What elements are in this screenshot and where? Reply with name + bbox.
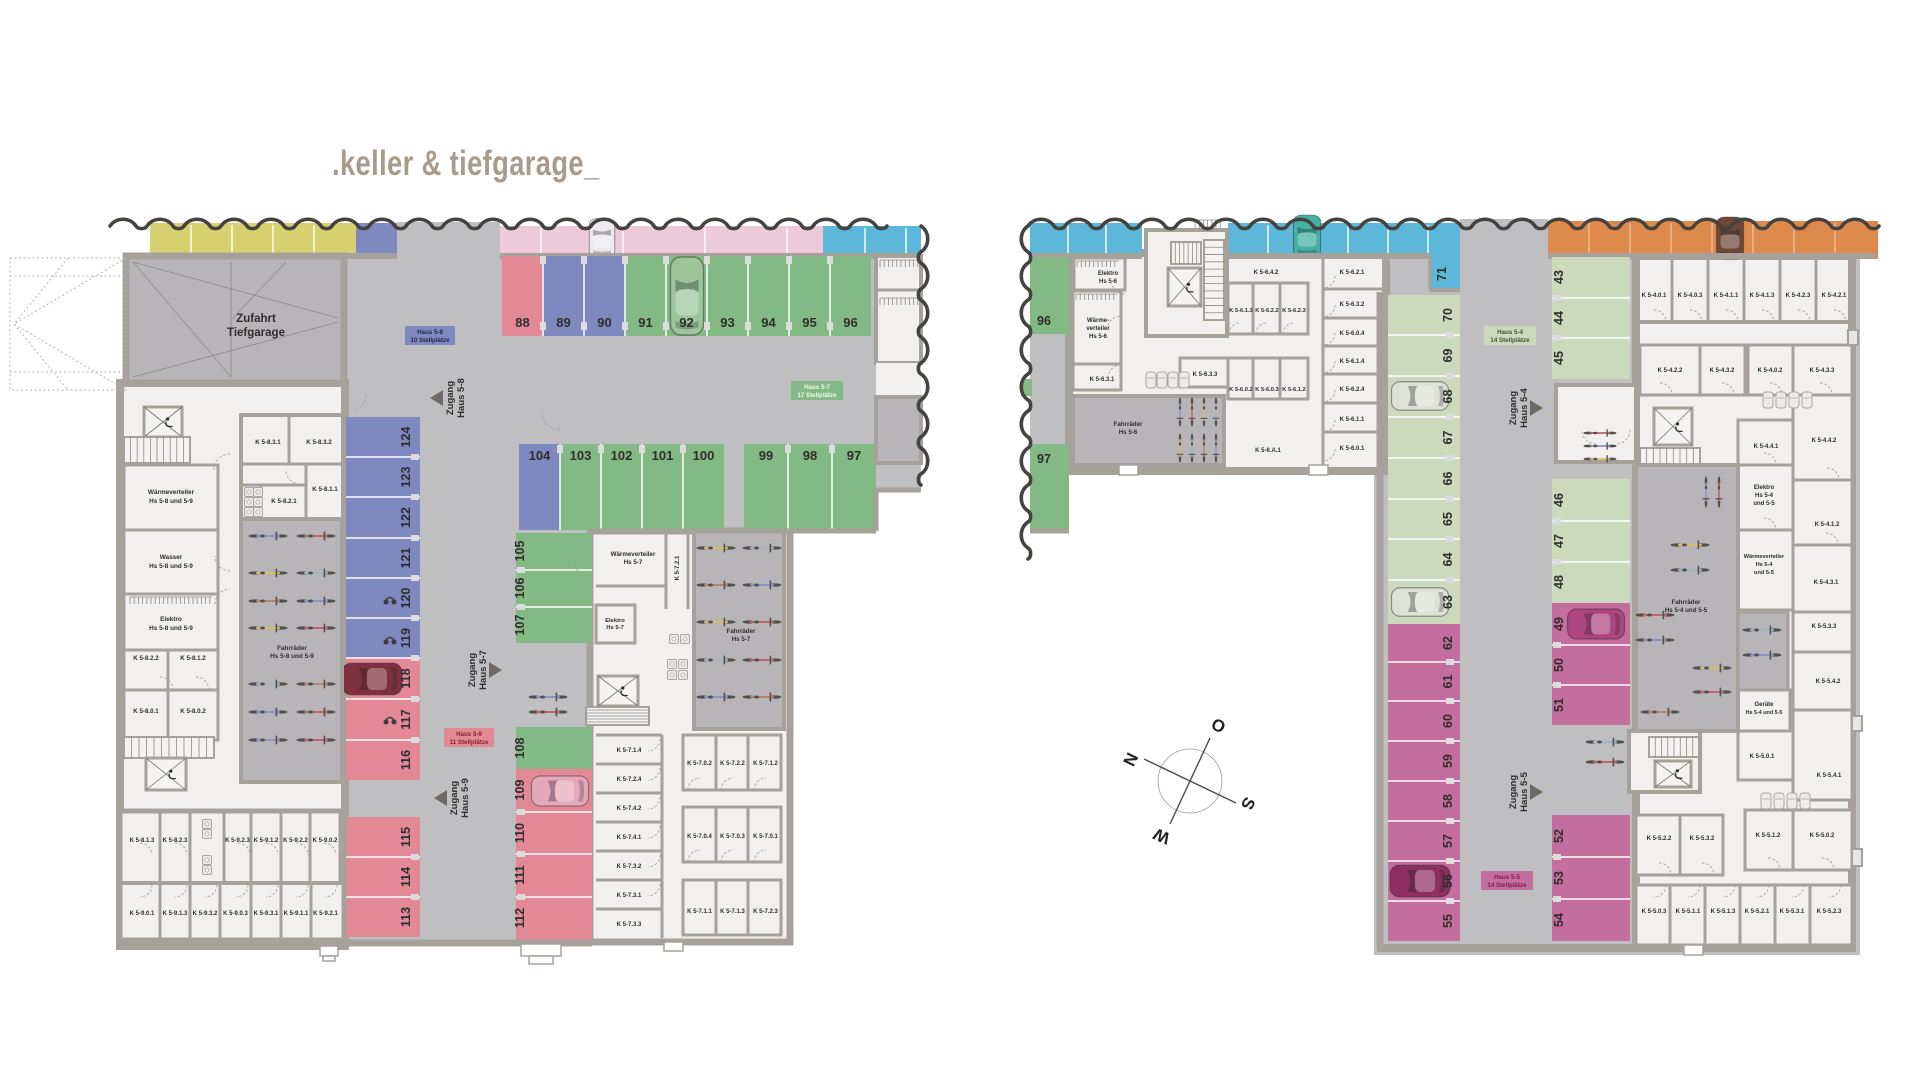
svg-text:96: 96 bbox=[843, 315, 857, 330]
svg-text:K 5-9.2.1: K 5-9.2.1 bbox=[313, 911, 338, 917]
svg-text:115: 115 bbox=[399, 827, 413, 847]
svg-text:10 Stellplätze: 10 Stellplätze bbox=[410, 337, 450, 344]
svg-text:96: 96 bbox=[1037, 314, 1051, 328]
svg-text:K 5-5.3.1: K 5-5.3.1 bbox=[1780, 909, 1805, 915]
svg-text:K 5-9.3.2: K 5-9.3.2 bbox=[193, 911, 218, 917]
svg-text:K 5-5.4.2: K 5-5.4.2 bbox=[1816, 679, 1841, 685]
svg-text:K 5-4.3.2: K 5-4.3.2 bbox=[1710, 368, 1735, 374]
svg-text:K 5-9.0.1: K 5-9.0.1 bbox=[130, 911, 155, 917]
svg-text:Fahrräder: Fahrräder bbox=[727, 628, 756, 635]
svg-text:K 5-7.0.2: K 5-7.0.2 bbox=[687, 761, 712, 767]
svg-text:K 5-4.2.3: K 5-4.2.3 bbox=[1786, 293, 1811, 299]
svg-text:14 Stellplätze: 14 Stellplätze bbox=[1487, 882, 1527, 889]
svg-text:70: 70 bbox=[1441, 308, 1455, 322]
svg-text:Zugang: Zugang bbox=[1508, 775, 1519, 809]
svg-text:K 5-6.2.4: K 5-6.2.4 bbox=[1340, 387, 1365, 393]
svg-text:95: 95 bbox=[802, 315, 816, 330]
svg-text:S: S bbox=[1237, 794, 1259, 813]
svg-text:67: 67 bbox=[1441, 431, 1455, 445]
svg-text:58: 58 bbox=[1441, 794, 1455, 808]
svg-text:K 5-7.2.3: K 5-7.2.3 bbox=[753, 909, 778, 915]
svg-text:K 5-5.3.2: K 5-5.3.2 bbox=[1690, 836, 1715, 842]
svg-text:Haus 5-9: Haus 5-9 bbox=[460, 778, 471, 818]
svg-text:62: 62 bbox=[1441, 636, 1455, 650]
svg-text:K 5-5.0.3: K 5-5.0.3 bbox=[1642, 909, 1667, 915]
svg-text:O: O bbox=[1208, 715, 1228, 738]
svg-text:K 5-5.1.3: K 5-5.1.3 bbox=[1711, 909, 1736, 915]
svg-text:K 5-5.1.1: K 5-5.1.1 bbox=[1676, 909, 1701, 915]
svg-text:K 5-8.0.2: K 5-8.0.2 bbox=[180, 708, 206, 715]
svg-text:K 5-4.3.3: K 5-4.3.3 bbox=[1810, 368, 1835, 374]
svg-text:K 5-6.1.4: K 5-6.1.4 bbox=[1340, 359, 1365, 365]
svg-text:Elektro: Elektro bbox=[605, 618, 625, 624]
svg-text:118: 118 bbox=[399, 668, 413, 688]
svg-text:Zugang: Zugang bbox=[467, 653, 478, 687]
svg-text:K 5-9.1.3: K 5-9.1.3 bbox=[163, 911, 188, 917]
svg-text:51: 51 bbox=[1552, 698, 1566, 712]
svg-text:103: 103 bbox=[570, 448, 592, 463]
svg-text:120: 120 bbox=[399, 588, 413, 609]
svg-text:124: 124 bbox=[399, 427, 413, 448]
svg-text:Wärme-: Wärme- bbox=[1087, 318, 1109, 324]
svg-text:Hs 5-4 und 5-5: Hs 5-4 und 5-5 bbox=[1746, 710, 1783, 716]
svg-text:112: 112 bbox=[513, 908, 527, 928]
svg-text:99: 99 bbox=[759, 448, 773, 463]
svg-text:Elektro: Elektro bbox=[1754, 485, 1775, 491]
svg-text:Hs 5-7: Hs 5-7 bbox=[624, 559, 643, 566]
svg-text:K 5-4.4.1: K 5-4.4.1 bbox=[1754, 444, 1779, 450]
svg-text:K 5-6.2.3: K 5-6.2.3 bbox=[1282, 308, 1305, 314]
svg-text:61: 61 bbox=[1441, 675, 1455, 689]
svg-text:K 5-7.4.2: K 5-7.4.2 bbox=[617, 806, 642, 812]
svg-text:43: 43 bbox=[1552, 270, 1566, 284]
svg-text:K 5-8.1.2: K 5-8.1.2 bbox=[180, 655, 206, 662]
svg-text:K 5-4.4.2: K 5-4.4.2 bbox=[1812, 438, 1837, 444]
svg-text:K 5-7.0.4: K 5-7.0.4 bbox=[687, 834, 712, 840]
svg-text:114: 114 bbox=[399, 867, 413, 887]
svg-text:100: 100 bbox=[693, 448, 715, 463]
svg-text:Haus 5-7: Haus 5-7 bbox=[478, 650, 489, 690]
svg-text:63: 63 bbox=[1441, 595, 1455, 609]
svg-text:92: 92 bbox=[679, 315, 693, 330]
svg-text:K 5-7.2.2: K 5-7.2.2 bbox=[720, 761, 745, 767]
svg-text:107: 107 bbox=[513, 615, 527, 636]
svg-text:Hs 5-7: Hs 5-7 bbox=[732, 636, 751, 643]
svg-text:K 5-4.0.2: K 5-4.0.2 bbox=[1758, 368, 1783, 374]
svg-text:47: 47 bbox=[1552, 534, 1566, 548]
svg-text:97: 97 bbox=[1037, 452, 1051, 466]
svg-text:Hs 5-6: Hs 5-6 bbox=[1119, 429, 1138, 436]
svg-text:109: 109 bbox=[513, 780, 527, 801]
svg-text:94: 94 bbox=[761, 315, 776, 330]
svg-text:Zugang: Zugang bbox=[1508, 391, 1519, 425]
svg-text:17 Stellplätze: 17 Stellplätze bbox=[797, 392, 837, 399]
svg-text:K 5-8.1.1: K 5-8.1.1 bbox=[312, 486, 338, 493]
svg-text:.keller & tiefgarage_: .keller & tiefgarage_ bbox=[332, 144, 600, 183]
svg-text:W: W bbox=[1150, 824, 1173, 848]
svg-text:46: 46 bbox=[1552, 493, 1566, 507]
svg-text:Elektro: Elektro bbox=[1098, 271, 1119, 277]
svg-text:K 5-6.3.3: K 5-6.3.3 bbox=[1193, 372, 1218, 378]
svg-text:K 5-5.2.2: K 5-5.2.2 bbox=[1647, 836, 1672, 842]
svg-text:Fahrräder: Fahrräder bbox=[1114, 421, 1143, 428]
svg-text:93: 93 bbox=[720, 315, 734, 330]
svg-text:K 5-7.3.3: K 5-7.3.3 bbox=[617, 922, 642, 928]
svg-text:K 5-4.1.3: K 5-4.1.3 bbox=[1750, 293, 1775, 299]
svg-text:Haus 5-8: Haus 5-8 bbox=[417, 329, 443, 336]
svg-text:66: 66 bbox=[1441, 472, 1455, 486]
svg-text:104: 104 bbox=[529, 448, 551, 463]
svg-text:56: 56 bbox=[1441, 874, 1455, 888]
svg-text:48: 48 bbox=[1552, 575, 1566, 589]
svg-text:52: 52 bbox=[1552, 829, 1566, 843]
svg-text:K 5-5.2.1: K 5-5.2.1 bbox=[1745, 909, 1770, 915]
svg-text:Haus 5-4: Haus 5-4 bbox=[1497, 329, 1523, 336]
svg-text:71: 71 bbox=[1435, 267, 1449, 281]
svg-text:K 5-7.0.3: K 5-7.0.3 bbox=[720, 834, 745, 840]
svg-text:N: N bbox=[1120, 750, 1142, 769]
svg-text:55: 55 bbox=[1441, 914, 1455, 928]
svg-text:Zugang: Zugang bbox=[445, 381, 456, 415]
svg-text:91: 91 bbox=[638, 315, 652, 330]
svg-text:K 5-4.0.1: K 5-4.0.1 bbox=[1642, 293, 1667, 299]
svg-text:K 5-9.2.3: K 5-9.2.3 bbox=[225, 838, 250, 844]
svg-text:K 5-5.2.3: K 5-5.2.3 bbox=[1817, 909, 1842, 915]
svg-text:88: 88 bbox=[515, 315, 529, 330]
svg-text:Wärmeverteiler: Wärmeverteiler bbox=[148, 489, 195, 496]
svg-text:Haus 5-7: Haus 5-7 bbox=[804, 384, 830, 391]
svg-text:K 5-5.4.1: K 5-5.4.1 bbox=[1817, 773, 1842, 779]
svg-text:53: 53 bbox=[1552, 871, 1566, 885]
svg-text:K 5-7.2.1: K 5-7.2.1 bbox=[675, 555, 681, 580]
svg-text:K 5-4.1.2: K 5-4.1.2 bbox=[1815, 522, 1840, 528]
svg-text:105: 105 bbox=[513, 541, 527, 562]
svg-text:K 5-7.4.1: K 5-7.4.1 bbox=[617, 835, 642, 841]
svg-text:K 5-6.3.2: K 5-6.3.2 bbox=[1340, 302, 1365, 308]
svg-text:117: 117 bbox=[399, 709, 413, 729]
svg-text:K 5-6.0.1: K 5-6.0.1 bbox=[1340, 446, 1365, 452]
svg-text:K 5-5.0.1: K 5-5.0.1 bbox=[1750, 754, 1775, 760]
svg-text:K 5-5.0.2: K 5-5.0.2 bbox=[1810, 833, 1835, 839]
svg-text:K 5-7.3.1: K 5-7.3.1 bbox=[617, 893, 642, 899]
svg-text:54: 54 bbox=[1552, 913, 1566, 927]
svg-text:K 5-8.3.1: K 5-8.3.1 bbox=[255, 439, 281, 446]
svg-text:K 5-8.3.2: K 5-8.3.2 bbox=[306, 439, 332, 446]
svg-text:122: 122 bbox=[399, 507, 413, 528]
svg-text:98: 98 bbox=[803, 448, 817, 463]
svg-text:59: 59 bbox=[1441, 754, 1455, 768]
svg-text:Hs 5-7: Hs 5-7 bbox=[606, 625, 623, 631]
svg-text:45: 45 bbox=[1552, 351, 1566, 365]
svg-text:Hs 5-6: Hs 5-6 bbox=[1089, 334, 1108, 340]
svg-text:65: 65 bbox=[1441, 512, 1455, 526]
svg-text:111: 111 bbox=[513, 865, 527, 885]
svg-text:K 5-6.4.2: K 5-6.4.2 bbox=[1254, 270, 1279, 276]
svg-text:64: 64 bbox=[1441, 553, 1455, 567]
svg-text:Hs 5-8 und 5-9: Hs 5-8 und 5-9 bbox=[149, 625, 193, 632]
svg-text:K 5-7.3.2: K 5-7.3.2 bbox=[617, 864, 642, 870]
svg-text:K 5-6.1.2: K 5-6.1.2 bbox=[1282, 387, 1305, 393]
svg-text:Wärmeverteiler: Wärmeverteiler bbox=[1744, 554, 1785, 560]
svg-text:108: 108 bbox=[513, 738, 527, 759]
svg-text:60: 60 bbox=[1441, 714, 1455, 728]
svg-text:121: 121 bbox=[399, 548, 413, 569]
svg-text:110: 110 bbox=[513, 823, 527, 843]
svg-text:K 5-4.3.1: K 5-4.3.1 bbox=[1814, 580, 1839, 586]
svg-text:K 5-6.3.1: K 5-6.3.1 bbox=[1090, 377, 1115, 383]
svg-text:K 5-6.1.1: K 5-6.1.1 bbox=[1340, 417, 1365, 423]
svg-text:113: 113 bbox=[399, 907, 413, 927]
svg-text:Fahrräder: Fahrräder bbox=[277, 645, 307, 652]
svg-text:K 5-7.1.2: K 5-7.1.2 bbox=[753, 761, 778, 767]
svg-text:K 5-6.1.3: K 5-6.1.3 bbox=[1229, 308, 1252, 314]
svg-text:Wärmeverteiler: Wärmeverteiler bbox=[611, 551, 656, 558]
svg-text:K 5-9.2.2: K 5-9.2.2 bbox=[283, 838, 308, 844]
svg-text:Wasser: Wasser bbox=[160, 554, 183, 561]
svg-text:K 5-5.1.2: K 5-5.1.2 bbox=[1756, 833, 1781, 839]
svg-text:Zugang: Zugang bbox=[449, 781, 460, 815]
svg-text:Fahrräder: Fahrräder bbox=[1672, 599, 1701, 606]
svg-text:K 5-8.2.2: K 5-8.2.2 bbox=[133, 655, 159, 662]
svg-text:und 5-5: und 5-5 bbox=[1754, 570, 1774, 576]
svg-text:49: 49 bbox=[1552, 617, 1566, 631]
svg-text:69: 69 bbox=[1441, 349, 1455, 363]
svg-text:K 5-8.0.1: K 5-8.0.1 bbox=[133, 708, 159, 715]
svg-text:Haus 5-9: Haus 5-9 bbox=[456, 731, 482, 738]
svg-text:Hs 5-8 und 5-9: Hs 5-8 und 5-9 bbox=[149, 498, 193, 505]
svg-text:K 5-7.2.4: K 5-7.2.4 bbox=[617, 777, 642, 783]
svg-text:11 Stellplätze: 11 Stellplätze bbox=[450, 739, 489, 746]
svg-text:K 5-5.3.3: K 5-5.3.3 bbox=[1812, 624, 1837, 630]
svg-text:Hs 5-8 und 5-9: Hs 5-8 und 5-9 bbox=[149, 563, 193, 570]
svg-text:50: 50 bbox=[1552, 658, 1566, 672]
svg-text:90: 90 bbox=[597, 315, 611, 330]
svg-text:Zufahrt: Zufahrt bbox=[236, 313, 276, 325]
svg-text:K 5-4.2.1: K 5-4.2.1 bbox=[1822, 293, 1847, 299]
svg-text:K 5-6.A.1: K 5-6.A.1 bbox=[1255, 448, 1281, 454]
svg-text:K 5-6.0.3: K 5-6.0.3 bbox=[1255, 387, 1278, 393]
svg-text:K 5-7.1.3: K 5-7.1.3 bbox=[720, 909, 745, 915]
svg-text:14 Stellplätze: 14 Stellplätze bbox=[1490, 337, 1530, 344]
svg-text:119: 119 bbox=[399, 628, 413, 648]
svg-text:68: 68 bbox=[1441, 390, 1455, 404]
svg-text:Elektro: Elektro bbox=[160, 616, 182, 623]
svg-text:K 5-7.1.4: K 5-7.1.4 bbox=[617, 748, 642, 754]
svg-text:Hs 5-4: Hs 5-4 bbox=[1755, 493, 1774, 499]
svg-text:K 5-9.1.1: K 5-9.1.1 bbox=[284, 911, 309, 917]
svg-text:Hs 5-6: Hs 5-6 bbox=[1099, 279, 1118, 285]
svg-text:K 5-4.2.2: K 5-4.2.2 bbox=[1658, 368, 1683, 374]
svg-text:Haus 5-8: Haus 5-8 bbox=[456, 378, 467, 418]
svg-text:116: 116 bbox=[399, 750, 413, 770]
svg-text:Tiefgarage: Tiefgarage bbox=[227, 327, 285, 339]
svg-text:K 5-9.3.1: K 5-9.3.1 bbox=[254, 911, 279, 917]
svg-text:K 5-4.0.3: K 5-4.0.3 bbox=[1678, 293, 1703, 299]
svg-text:und 5-5: und 5-5 bbox=[1753, 501, 1775, 507]
svg-text:Hs 5-4: Hs 5-4 bbox=[1756, 562, 1774, 568]
svg-text:Hs 5-8 und 5-9: Hs 5-8 und 5-9 bbox=[270, 653, 314, 660]
svg-text:K 5-7.1.1: K 5-7.1.1 bbox=[687, 909, 712, 915]
svg-text:K 5-7.0.1: K 5-7.0.1 bbox=[753, 834, 778, 840]
svg-text:101: 101 bbox=[652, 448, 674, 463]
svg-text:44: 44 bbox=[1552, 311, 1566, 325]
svg-text:K 5-4.1.1: K 5-4.1.1 bbox=[1714, 293, 1739, 299]
svg-text:Geräte: Geräte bbox=[1754, 702, 1774, 708]
svg-text:Haus 5-4: Haus 5-4 bbox=[1519, 387, 1530, 427]
svg-text:89: 89 bbox=[556, 315, 570, 330]
svg-text:K 5-6.0.2: K 5-6.0.2 bbox=[1229, 387, 1252, 393]
svg-text:K 5-6.2.2: K 5-6.2.2 bbox=[1255, 308, 1278, 314]
svg-text:Haus 5-5: Haus 5-5 bbox=[1494, 874, 1520, 881]
svg-text:102: 102 bbox=[611, 448, 633, 463]
svg-text:Hs 5-4 und 5-5: Hs 5-4 und 5-5 bbox=[1665, 607, 1708, 614]
svg-text:106: 106 bbox=[513, 578, 527, 599]
svg-text:57: 57 bbox=[1441, 834, 1455, 848]
svg-text:123: 123 bbox=[399, 467, 413, 488]
svg-text:K 5-9.0.3: K 5-9.0.3 bbox=[223, 911, 248, 917]
svg-text:97: 97 bbox=[847, 448, 861, 463]
svg-text:Haus 5-5: Haus 5-5 bbox=[1519, 771, 1530, 811]
svg-text:K 5-8.2.1: K 5-8.2.1 bbox=[271, 498, 297, 505]
svg-text:K 5-6.2.1: K 5-6.2.1 bbox=[1340, 270, 1365, 276]
svg-text:K 5-6.0.4: K 5-6.0.4 bbox=[1340, 331, 1365, 337]
